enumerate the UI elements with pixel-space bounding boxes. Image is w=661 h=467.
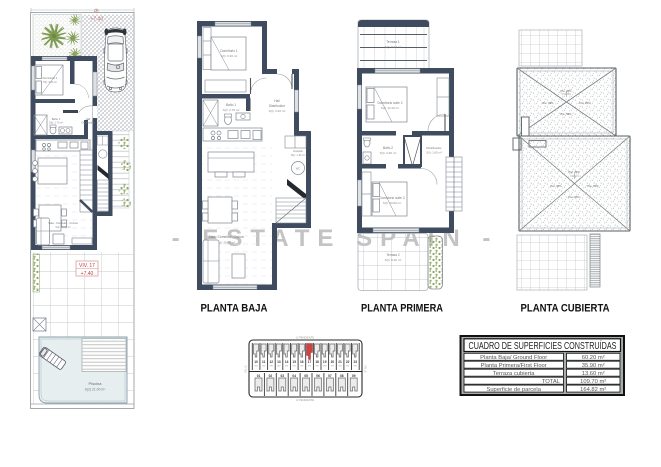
svg-text:S(I): 9.30 m²: S(I): 9.30 m² [43, 81, 57, 84]
svg-text:Piscina: Piscina [89, 381, 103, 386]
svg-text:C/ PENDIENTE: C/ PENDIENTE [296, 336, 314, 340]
svg-text:S(I): 2.75 m²: S(I): 2.75 m² [49, 122, 63, 125]
svg-text:Terraza cubierta: Terraza cubierta [493, 371, 535, 377]
svg-text:Dormitorio 1: Dormitorio 1 [220, 49, 238, 53]
svg-text:Dormitorio 1: Dormitorio 1 [43, 76, 58, 80]
svg-text:S(I): 3.60 m²: S(I): 3.60 m² [380, 151, 397, 155]
svg-text:PLANTA CUBIERTA: PLANTA CUBIERTA [521, 303, 610, 315]
svg-text:S(I): 1.60 m²: S(I): 1.60 m² [426, 151, 442, 155]
svg-text:Hall: Hall [274, 99, 280, 103]
svg-text:S(I): 13.00 m²: S(I): 13.00 m² [383, 201, 401, 205]
svg-text:10: 10 [254, 360, 258, 364]
svg-text:05: 05 [304, 374, 308, 378]
svg-text:23: 23 [354, 360, 358, 364]
svg-text:Baño 1: Baño 1 [226, 103, 236, 107]
svg-text:Hall: Hall [86, 117, 91, 121]
svg-text:Armario: Armario [293, 149, 303, 153]
svg-text:18: 18 [315, 360, 319, 364]
svg-text:Superficie de parcela: Superficie de parcela [486, 387, 541, 393]
svg-text:Distribuidor: Distribuidor [269, 104, 286, 108]
svg-text:15: 15 [292, 360, 296, 364]
svg-text:Dormitorio suite 3: Dormitorio suite 3 [380, 196, 405, 200]
svg-text:12: 12 [270, 360, 274, 364]
svg-text:S(I): 20.00 m²: S(I): 20.00 m² [55, 226, 70, 229]
svg-text:Planta Baja/ Ground Floor: Planta Baja/ Ground Floor [480, 355, 547, 361]
svg-text:S(I): 12.20 m²: S(I): 12.20 m² [381, 106, 399, 110]
svg-text:Terraza 1: Terraza 1 [386, 40, 400, 44]
svg-text:CALLE: CALLE [245, 365, 248, 373]
svg-text:35.90 m²: 35.90 m² [582, 363, 605, 369]
svg-text:S(I): 8.20 m²: S(I): 8.20 m² [385, 258, 402, 262]
svg-text:Sala - Comedor - Cocina: Sala - Comedor - Cocina [208, 235, 243, 239]
svg-text:C/ PENDIENTE: C/ PENDIENTE [296, 398, 314, 402]
svg-text:S(I): 2.75 m²: S(I): 2.75 m² [223, 108, 240, 112]
svg-text:S(I): 9.30 m²: S(I): 9.30 m² [221, 54, 238, 58]
svg-text:09: 09 [352, 374, 356, 378]
svg-text:Pte: 35%: Pte: 35% [560, 112, 572, 116]
svg-text:02: 02 [269, 374, 273, 378]
svg-text:21: 21 [338, 360, 342, 364]
svg-text:Sala - Comedor - Cocina: Sala - Comedor - Cocina [48, 221, 78, 225]
svg-text:17: 17 [308, 360, 312, 364]
svg-text:Pte: 35%: Pte: 35% [542, 101, 554, 105]
svg-text:06: 06 [316, 374, 320, 378]
svg-text:PLANTA BAJA: PLANTA BAJA [201, 303, 268, 315]
svg-text:TOTAL: TOTAL [542, 379, 561, 385]
svg-text:19: 19 [323, 360, 327, 364]
svg-text:11: 11 [262, 360, 266, 364]
svg-text:S(I): 1.30 m²: S(I): 1.30 m² [291, 153, 306, 157]
svg-text:Terraza 2: Terraza 2 [386, 253, 400, 257]
svg-text:Pte: 35%: Pte: 35% [550, 184, 562, 188]
svg-text:S(I): 3.20 m²: S(I): 3.20 m² [269, 109, 286, 113]
svg-text:08: 08 [340, 374, 344, 378]
svg-text:14: 14 [285, 360, 289, 364]
svg-text:03: 03 [281, 374, 285, 378]
svg-text:Baño 1: Baño 1 [52, 117, 61, 121]
svg-text:WC: WC [296, 167, 300, 171]
svg-text:Pte: 35%: Pte: 35% [568, 195, 580, 199]
svg-text:VIV. 17: VIV. 17 [79, 263, 95, 269]
svg-text:07: 07 [328, 374, 332, 378]
svg-text:S(2) 21.00 m²: S(2) 21.00 m² [85, 388, 107, 392]
svg-text:01: 01 [257, 374, 261, 378]
svg-text:CALLE: CALLE [364, 365, 367, 373]
svg-text:Planta Primera/First Floor: Planta Primera/First Floor [481, 363, 547, 369]
svg-text:CUADRO DE SUPERFICIES CONSTRUÍ: CUADRO DE SUPERFICIES CONSTRUÍDAS [469, 341, 617, 352]
svg-text:S(I): 8.20 m²: S(I): 8.20 m² [385, 45, 402, 49]
svg-text:60.20 m²: 60.20 m² [582, 355, 605, 361]
svg-text:S(I): 20.00 m²: S(I): 20.00 m² [217, 241, 235, 245]
svg-text:109.70 m²: 109.70 m² [580, 379, 606, 385]
svg-text:16: 16 [300, 360, 304, 364]
svg-text:22: 22 [346, 360, 350, 364]
svg-text:Pte: 35%: Pte: 35% [587, 184, 599, 188]
svg-text:Baño 2: Baño 2 [383, 146, 393, 150]
svg-text:13: 13 [277, 360, 281, 364]
svg-text:Distribuidor: Distribuidor [426, 146, 441, 150]
svg-text:+7.40: +7.40 [91, 17, 104, 23]
svg-text:Distribuidor: Distribuidor [81, 121, 94, 125]
svg-text:+7.40: +7.40 [81, 271, 94, 277]
svg-text:164.82 m²: 164.82 m² [580, 387, 606, 393]
svg-text:20: 20 [331, 360, 335, 364]
svg-text:Dormitorio suite 2: Dormitorio suite 2 [378, 101, 403, 105]
svg-text:04: 04 [292, 374, 296, 378]
svg-text:PLANTA PRIMERA: PLANTA PRIMERA [361, 303, 443, 315]
svg-text:13.60 m²: 13.60 m² [582, 371, 605, 377]
svg-text:Pte: 35%: Pte: 35% [579, 101, 591, 105]
